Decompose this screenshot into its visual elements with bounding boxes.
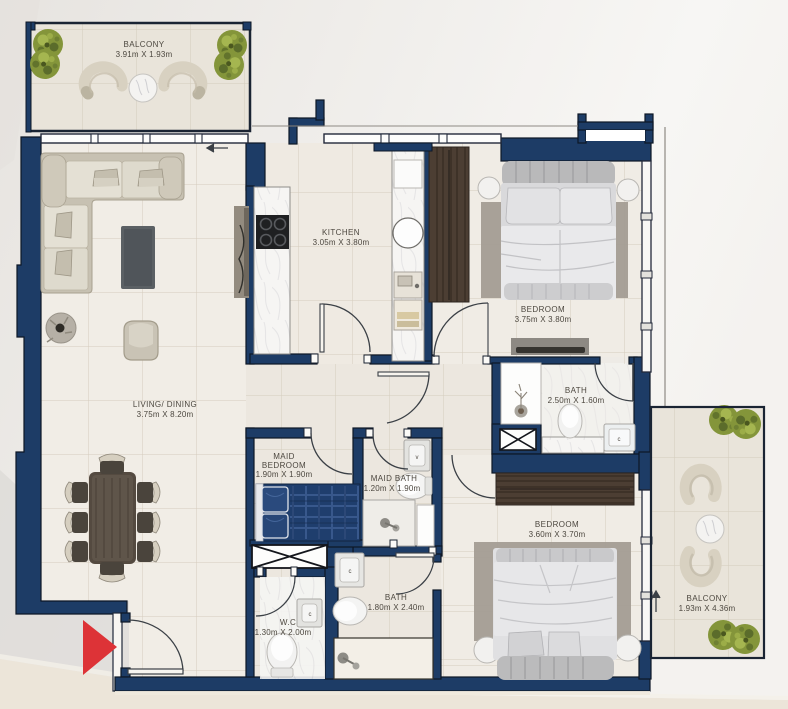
svg-text:BATH: BATH [565, 386, 587, 395]
svg-text:LIVING/ DINING: LIVING/ DINING [133, 400, 197, 409]
svg-text:c: c [309, 612, 312, 618]
svg-text:c: c [618, 437, 621, 443]
svg-text:3.91m X 1.93m: 3.91m X 1.93m [116, 50, 173, 59]
svg-text:1.20m X 1.90m: 1.20m X 1.90m [364, 484, 421, 493]
svg-text:W.C: W.C [280, 618, 296, 627]
svg-text:BALCONY: BALCONY [123, 40, 164, 49]
svg-text:BATH: BATH [385, 593, 407, 602]
svg-text:3.60m X 3.70m: 3.60m X 3.70m [529, 530, 586, 539]
svg-text:MAID: MAID [273, 452, 295, 461]
svg-text:3.75m X 3.80m: 3.75m X 3.80m [515, 315, 572, 324]
svg-text:v: v [416, 455, 419, 461]
svg-text:1.80m X 2.40m: 1.80m X 2.40m [368, 603, 425, 612]
svg-text:BEDROOM: BEDROOM [521, 305, 565, 314]
svg-text:MAID BATH: MAID BATH [371, 474, 418, 483]
svg-text:BEDROOM: BEDROOM [262, 461, 306, 470]
svg-text:BEDROOM: BEDROOM [535, 520, 579, 529]
svg-text:1.93m X 4.36m: 1.93m X 4.36m [679, 604, 736, 613]
svg-text:1.30m X 2.00m: 1.30m X 2.00m [255, 628, 312, 637]
svg-text:3.75m X 8.20m: 3.75m X 8.20m [137, 410, 194, 419]
svg-text:KITCHEN: KITCHEN [322, 228, 360, 237]
svg-text:3.05m X 3.80m: 3.05m X 3.80m [313, 238, 370, 247]
svg-text:2.50m X 1.60m: 2.50m X 1.60m [548, 396, 605, 405]
svg-text:1.90m X 1.90m: 1.90m X 1.90m [256, 470, 313, 479]
svg-text:BALCONY: BALCONY [686, 594, 727, 603]
svg-text:c: c [349, 569, 352, 575]
